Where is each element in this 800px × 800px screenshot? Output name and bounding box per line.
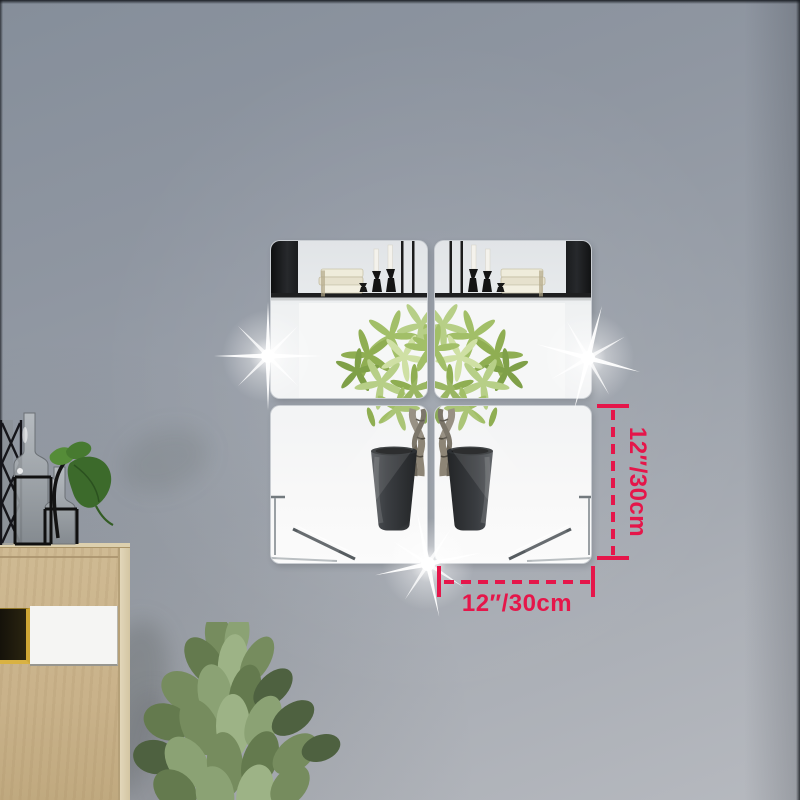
cabinet-recess-gold-trim — [0, 608, 30, 664]
mirror-tile-grid — [270, 240, 592, 564]
dimension-height-bottom-cap — [597, 556, 629, 560]
mirror-tile-bottom-right — [434, 405, 592, 564]
mirror-tile-bottom-left — [270, 405, 428, 564]
dimension-width-right-cap — [591, 566, 595, 597]
reflection-scene — [271, 405, 428, 564]
photo-edge-top — [0, 0, 800, 4]
dimension-height-top-cap — [597, 404, 629, 408]
reflection-scene — [271, 241, 428, 399]
dimension-width-label: 12″/30cm — [446, 590, 588, 618]
reflection-scene — [434, 241, 592, 399]
cabinet-front — [0, 548, 118, 800]
cabinet-white-drawer-panel — [30, 606, 118, 666]
photo-edge-right — [796, 0, 800, 800]
cabinet-seam — [0, 556, 118, 558]
dimension-height-line — [611, 410, 615, 555]
dimension-width-line — [444, 580, 590, 584]
mirror-tile-top-left — [270, 240, 428, 399]
reflection-scene — [434, 405, 592, 564]
dimension-width-left-cap — [437, 566, 441, 597]
dimension-height-label: 12″/30cm — [623, 419, 651, 545]
plant-leaves — [130, 622, 344, 800]
product-photo-scene: 12″/30cm 12″/30cm — [0, 0, 800, 800]
wood-cabinet — [0, 543, 130, 800]
fiddle-leaf-plant — [125, 622, 345, 800]
mirror-tile-top-right — [434, 240, 592, 399]
cabinet-decor — [0, 405, 132, 547]
